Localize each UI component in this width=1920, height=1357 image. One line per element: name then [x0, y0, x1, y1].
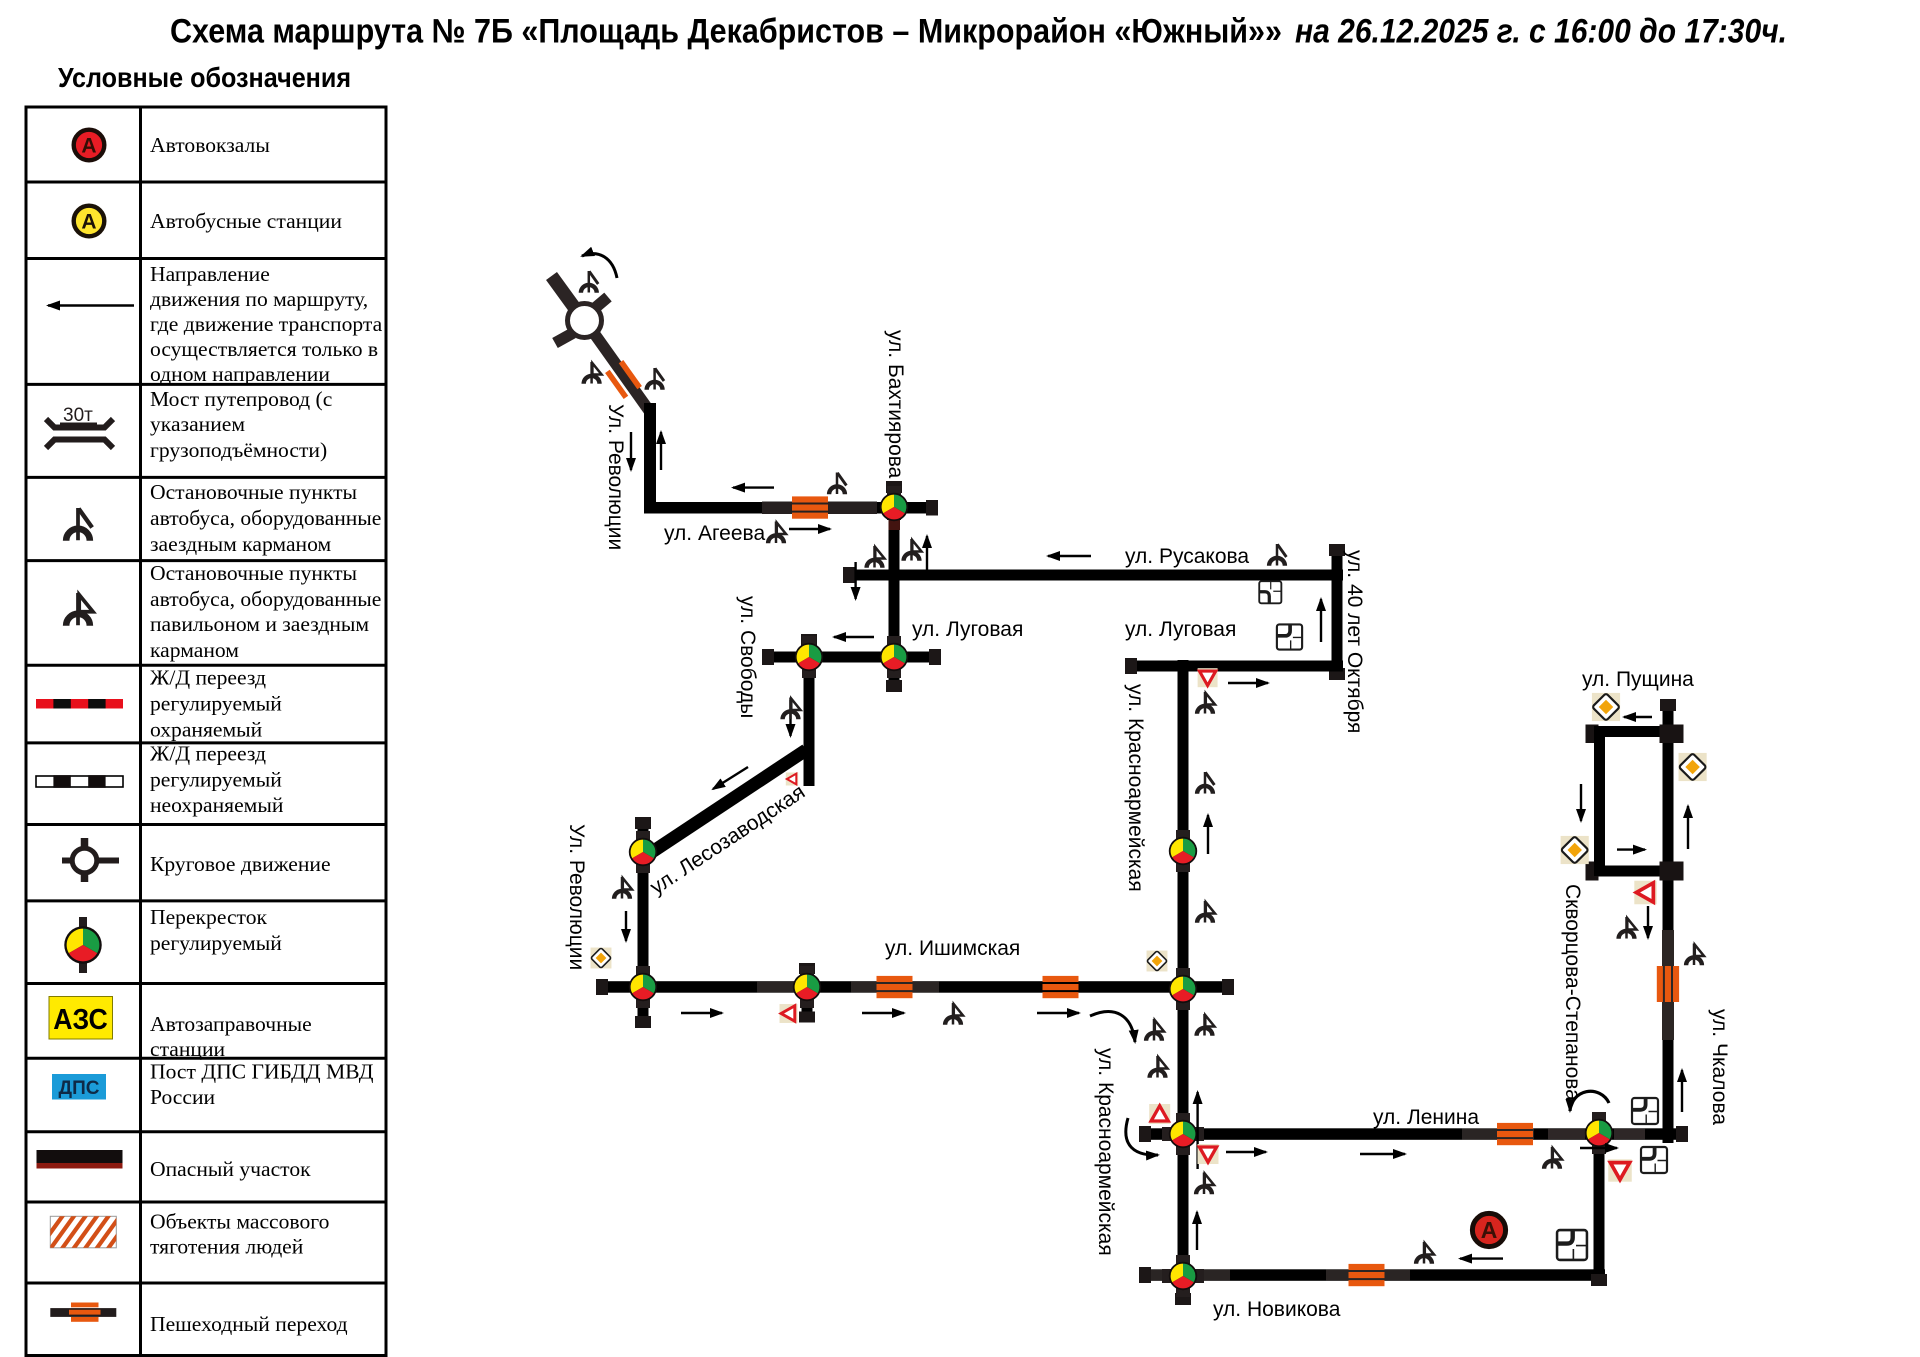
- svg-text:Перекресток: Перекресток: [150, 905, 268, 929]
- svg-text:осуществляется только в: осуществляется только в: [150, 337, 378, 361]
- svg-text:ул. Луговая: ул. Луговая: [912, 618, 1023, 641]
- svg-text:Автозаправочные: Автозаправочные: [150, 1012, 312, 1036]
- svg-text:тяготения людей: тяготения людей: [150, 1235, 304, 1259]
- svg-text:ул. Ленина: ул. Ленина: [1373, 1106, 1479, 1129]
- svg-text:станции: станции: [150, 1037, 226, 1061]
- svg-text:ул. 40 лет Октября: ул. 40 лет Октября: [1343, 550, 1366, 733]
- svg-text:Ж/Д переезд: Ж/Д переезд: [150, 742, 266, 766]
- svg-text:ул. Чкалова: ул. Чкалова: [1708, 1009, 1731, 1125]
- svg-text:заездным карманом: заездным карманом: [150, 532, 331, 556]
- svg-text:одном направлении: одном направлении: [150, 362, 330, 386]
- svg-text:ул. Ишимская: ул. Ишимская: [885, 937, 1020, 960]
- svg-text:ул. Свободы: ул. Свободы: [736, 596, 759, 718]
- svg-text:ул. Пущина: ул. Пущина: [1582, 668, 1694, 691]
- svg-text:регулируемый: регулируемый: [150, 768, 282, 792]
- svg-text:регулируемый: регулируемый: [150, 931, 282, 955]
- svg-text:Пост ДПС ГИБДД МВД: Пост ДПС ГИБДД МВД: [150, 1060, 374, 1084]
- svg-text:автобуса, оборудованные: автобуса, оборудованные: [150, 506, 381, 530]
- svg-text:Объекты массового: Объекты массового: [150, 1210, 329, 1234]
- svg-text:ул. Красноармейская: ул. Красноармейская: [1124, 684, 1147, 892]
- svg-text:охраняемый: охраняемый: [150, 718, 263, 742]
- svg-text:ул. Агеева: ул. Агеева: [664, 522, 765, 545]
- svg-text:указанием: указанием: [150, 412, 245, 436]
- svg-text:автобуса, оборудованные: автобуса, оборудованные: [150, 587, 381, 611]
- svg-text:Остановочные пункты: Остановочные пункты: [150, 561, 357, 585]
- svg-text:Круговое движение: Круговое движение: [150, 852, 331, 876]
- svg-text:Ул. Революции: Ул. Революции: [565, 824, 588, 970]
- svg-text:на 26.12.2025 г. с 16:00 до 17: на 26.12.2025 г. с 16:00 до 17:30ч.: [1295, 13, 1787, 51]
- svg-text:ул. Красноармейская: ул. Красноармейская: [1094, 1048, 1117, 1256]
- svg-text:карманом: карманом: [150, 638, 239, 662]
- svg-text:Пешеходный переход: Пешеходный переход: [150, 1312, 348, 1336]
- svg-text:ул. Луговая: ул. Луговая: [1125, 618, 1236, 641]
- svg-text:где движение транспорта: где движение транспорта: [150, 312, 383, 336]
- svg-text:неохраняемый: неохраняемый: [150, 793, 284, 817]
- svg-text:регулируемый: регулируемый: [150, 692, 282, 716]
- svg-text:движения по маршруту,: движения по маршруту,: [150, 287, 368, 311]
- svg-text:ДПС: ДПС: [59, 1078, 100, 1099]
- svg-text:Мост путепровод (с: Мост путепровод (с: [150, 387, 332, 411]
- svg-text:Автобусные станции: Автобусные станции: [150, 209, 342, 233]
- svg-text:павильоном и заездным: павильоном и заездным: [150, 612, 369, 636]
- svg-text:А: А: [81, 210, 96, 233]
- svg-text:ул. Новикова: ул. Новикова: [1213, 1298, 1341, 1321]
- svg-text:ул. Русакова: ул. Русакова: [1125, 545, 1249, 568]
- svg-text:А: А: [81, 134, 96, 157]
- svg-text:Ж/Д переезд: Ж/Д переезд: [150, 666, 266, 690]
- svg-text:Скворцова-Степанова: Скворцова-Степанова: [1561, 884, 1584, 1101]
- svg-text:ул. Бахтиярова: ул. Бахтиярова: [884, 330, 907, 479]
- svg-text:Остановочные пункты: Остановочные пункты: [150, 480, 357, 504]
- svg-text:Схема маршрута № 7Б «Площадь Д: Схема маршрута № 7Б «Площадь Декабристов…: [170, 13, 1282, 51]
- svg-text:России: России: [150, 1085, 216, 1109]
- svg-text:Автовокзалы: Автовокзалы: [150, 133, 270, 157]
- svg-text:грузоподъёмности): грузоподъёмности): [150, 438, 327, 462]
- svg-text:Опасный участок: Опасный участок: [150, 1157, 311, 1181]
- svg-text:Ул. Революции: Ул. Революции: [604, 404, 627, 550]
- svg-text:Направление: Направление: [150, 262, 270, 286]
- svg-text:Условные обозначения: Условные обозначения: [58, 62, 351, 93]
- svg-text:АЗС: АЗС: [53, 1003, 108, 1035]
